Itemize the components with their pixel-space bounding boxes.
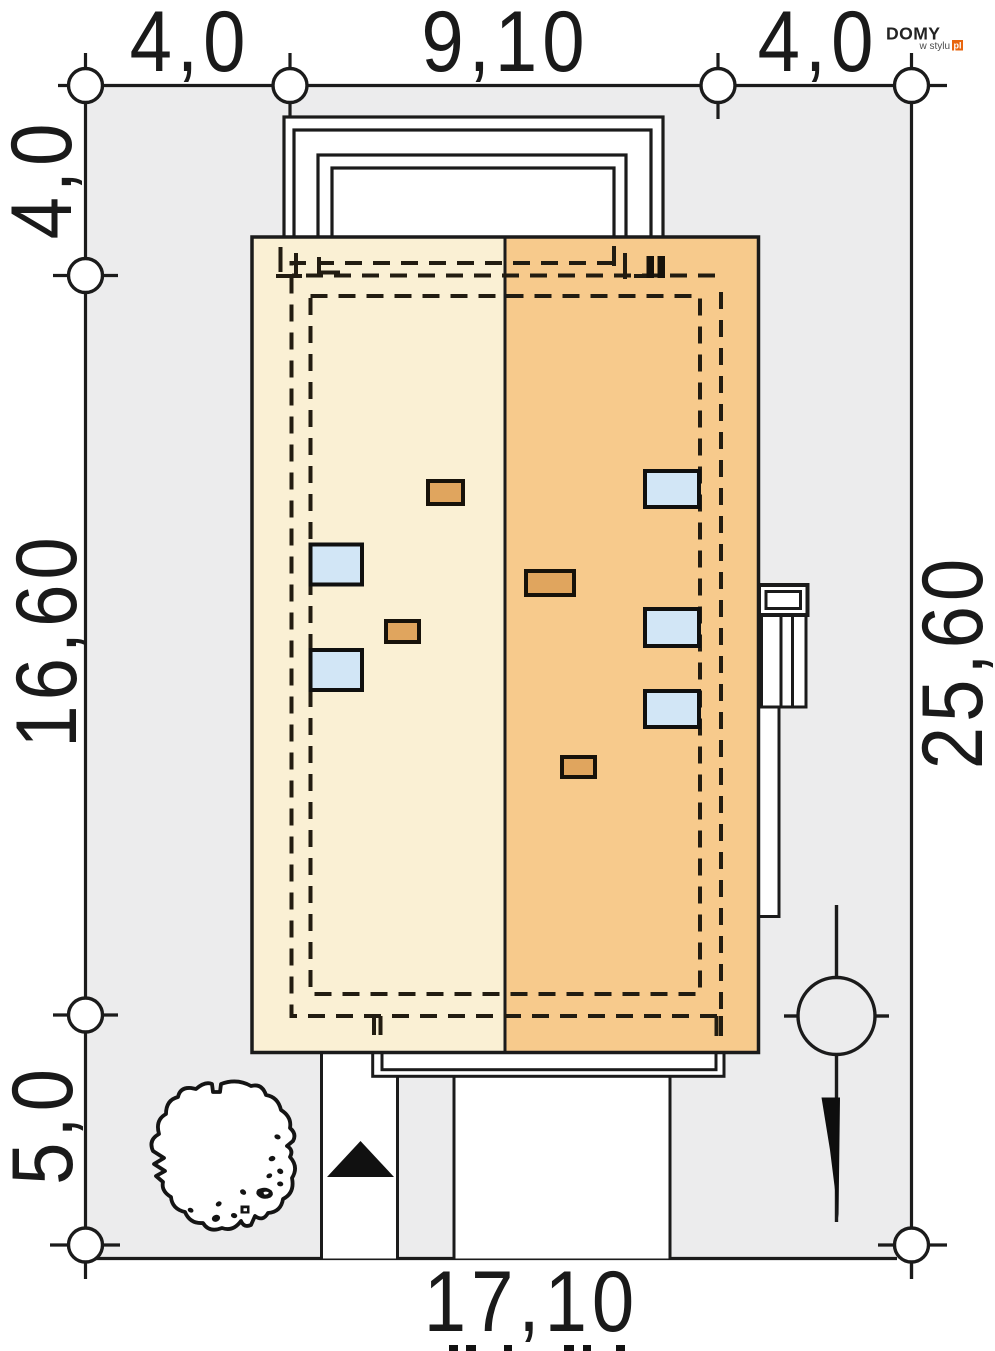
svg-text:4,0: 4,0 [0,119,90,240]
svg-text:16,60: 16,60 [0,532,95,748]
svg-text:9,10: 9,10 [421,0,589,90]
svg-text:5,0: 5,0 [0,1064,91,1185]
svg-text:4,0: 4,0 [130,0,251,90]
svg-text:w stylu: w stylu [918,41,950,52]
svg-text:25,60: 25,60 [904,554,995,770]
svg-text:17,10: 17,10 [424,1253,640,1350]
svg-text:pl: pl [954,41,962,51]
svg-text:4,0: 4,0 [758,0,879,90]
